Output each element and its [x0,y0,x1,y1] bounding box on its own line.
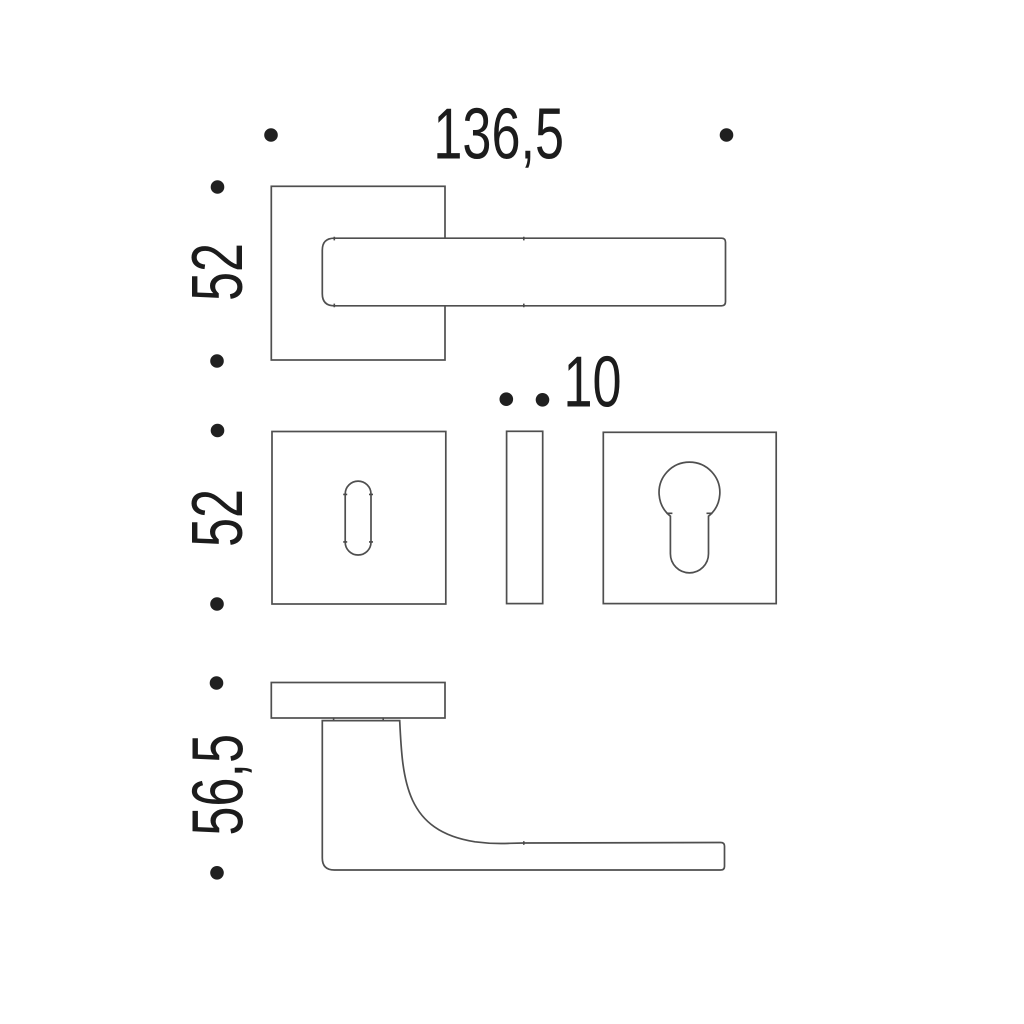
svg-text:56,5: 56,5 [178,734,258,836]
svg-text:52: 52 [178,489,258,547]
svg-text:136,5: 136,5 [433,94,564,174]
svg-text:52: 52 [178,243,258,301]
svg-text:10: 10 [564,342,622,422]
